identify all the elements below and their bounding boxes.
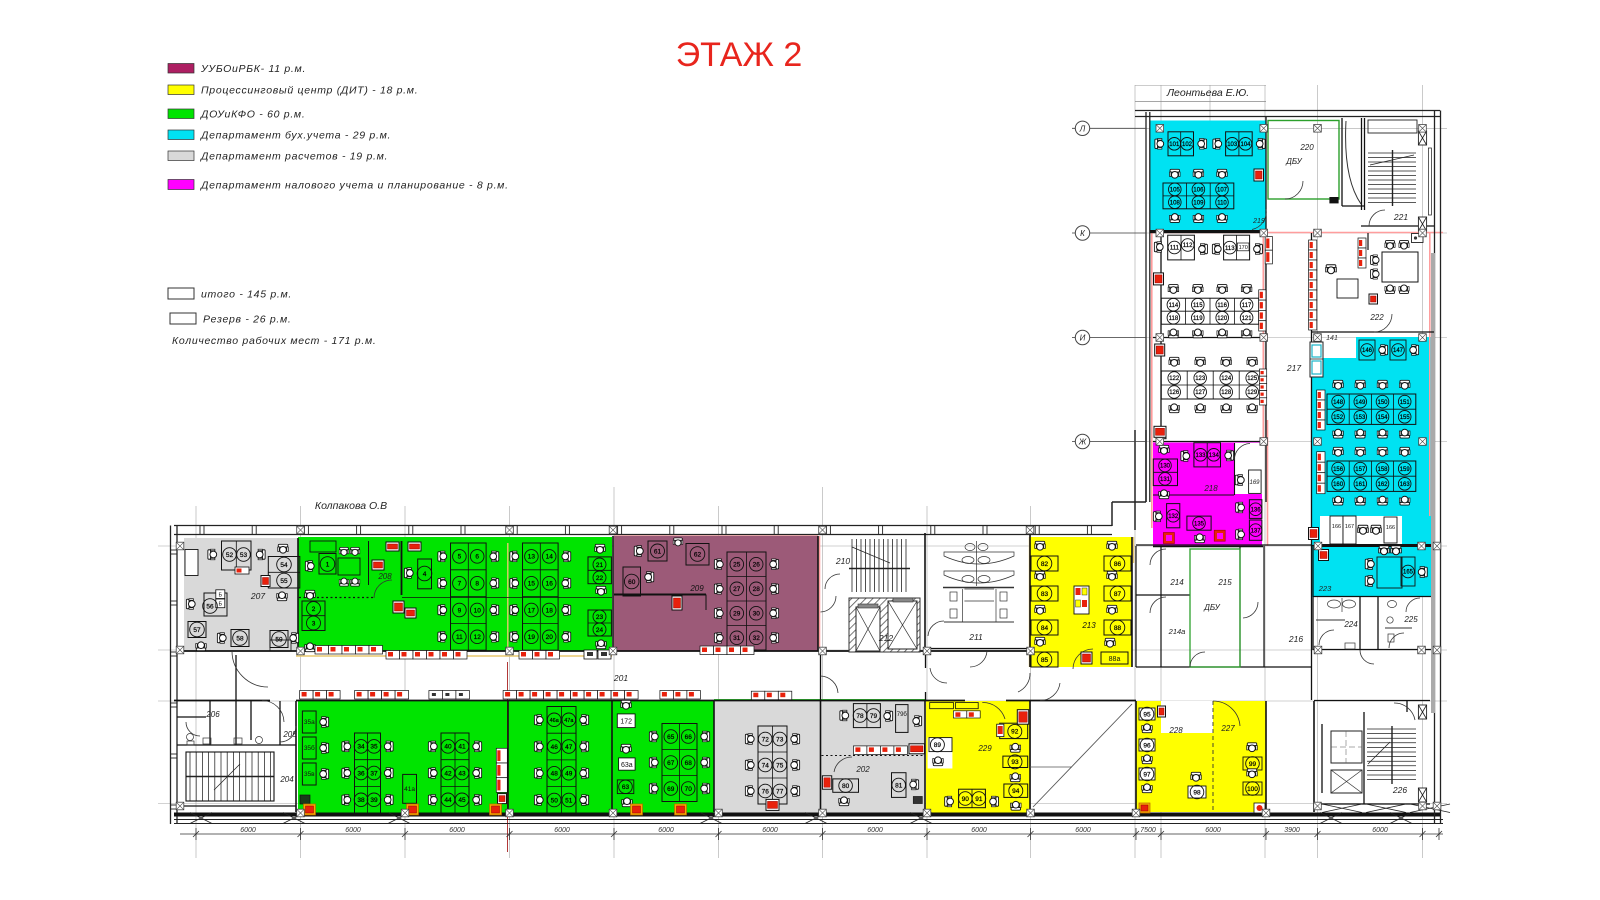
svg-text:9: 9 [458,607,462,614]
svg-text:122: 122 [1169,376,1180,382]
svg-text:88а: 88а [1109,656,1121,663]
svg-text:89: 89 [934,742,942,749]
svg-text:66: 66 [685,734,693,741]
svg-text:130: 130 [1160,464,1171,470]
svg-text:55: 55 [280,578,288,585]
svg-text:И: И [1080,334,1086,343]
svg-text:ДБУ: ДБУ [1203,603,1220,612]
svg-text:59: 59 [275,636,283,643]
svg-text:87: 87 [1114,591,1122,598]
svg-text:229: 229 [977,744,992,753]
svg-text:170: 170 [1239,245,1248,251]
svg-text:6000: 6000 [658,827,674,834]
svg-text:35: 35 [370,744,378,751]
svg-text:63а: 63а [621,762,633,769]
svg-text:79: 79 [870,713,878,720]
svg-text:172: 172 [620,719,632,726]
svg-text:222: 222 [1369,313,1384,322]
svg-text:110: 110 [1217,201,1227,207]
svg-text:46: 46 [551,744,559,751]
svg-text:106: 106 [1193,188,1204,194]
svg-text:101: 101 [1169,142,1180,148]
svg-text:127: 127 [1195,390,1206,396]
svg-text:128: 128 [1221,390,1232,396]
svg-text:120: 120 [1217,316,1228,322]
svg-text:206: 206 [205,710,220,719]
svg-text:80: 80 [842,783,850,790]
svg-text:99: 99 [1249,761,1257,768]
svg-text:107: 107 [1217,188,1228,194]
svg-text:42: 42 [444,770,452,777]
svg-text:итого - 145 р.м.: итого - 145 р.м. [201,289,292,301]
svg-text:50: 50 [551,797,559,804]
svg-text:103: 103 [1227,142,1238,148]
svg-text:115: 115 [1193,303,1203,309]
svg-text:154: 154 [1377,415,1388,421]
svg-text:ДБУ: ДБУ [1285,157,1302,166]
svg-text:114: 114 [1169,303,1179,309]
svg-text:28: 28 [753,586,761,593]
svg-text:13: 13 [528,554,536,561]
svg-text:15: 15 [528,581,536,588]
svg-text:7: 7 [458,581,462,588]
svg-text:224: 224 [1343,620,1358,629]
svg-text:212: 212 [878,633,893,643]
svg-text:32: 32 [753,635,761,642]
svg-text:109: 109 [1193,201,1204,207]
svg-text:43: 43 [458,770,466,777]
svg-text:202: 202 [855,765,870,774]
svg-text:6000: 6000 [1075,827,1091,834]
svg-text:227: 227 [1220,724,1235,733]
svg-text:129: 129 [1247,390,1258,396]
svg-text:35б: 35б [304,744,315,752]
svg-text:67: 67 [667,760,675,767]
svg-text:68: 68 [685,760,693,767]
svg-text:90: 90 [962,796,970,803]
svg-text:Количество рабочих мест - 171: Количество рабочих мест - 171 р.м. [172,335,376,347]
svg-text:49: 49 [565,771,573,778]
svg-text:70: 70 [685,786,693,793]
svg-text:117: 117 [1242,303,1252,309]
svg-text:214а: 214а [1168,627,1186,636]
svg-text:86: 86 [1114,561,1122,568]
svg-text:57: 57 [193,627,201,634]
svg-text:22: 22 [596,575,604,582]
svg-text:216: 216 [1288,634,1303,644]
svg-text:100: 100 [1247,786,1258,793]
svg-text:118: 118 [1169,316,1179,322]
svg-text:26: 26 [753,562,761,569]
svg-text:Департамент расчетов - 19 р.м: Департамент расчетов - 19 р.м. [200,151,388,163]
svg-text:40: 40 [444,744,452,751]
svg-text:77: 77 [776,788,784,795]
svg-text:215: 215 [1217,578,1232,587]
svg-text:146: 146 [1362,348,1373,354]
svg-text:98: 98 [1193,789,1201,796]
svg-text:25: 25 [733,562,741,569]
svg-text:65: 65 [667,734,675,741]
svg-text:95: 95 [1143,711,1151,718]
svg-text:47а: 47а [564,718,574,724]
svg-text:153: 153 [1355,415,1366,421]
svg-text:Департамент бух.учета - 29 р.м: Департамент бух.учета - 29 р.м. [200,130,391,142]
svg-text:76: 76 [762,788,770,795]
svg-text:19: 19 [528,634,536,641]
svg-text:27: 27 [733,586,741,593]
svg-text:14: 14 [546,554,554,561]
svg-text:41: 41 [458,744,466,751]
svg-text:97: 97 [1143,771,1151,778]
svg-text:78: 78 [856,713,864,720]
svg-text:213: 213 [1081,621,1096,630]
svg-text:108: 108 [1170,201,1181,207]
svg-text:35а: 35а [304,719,315,726]
svg-text:157: 157 [1355,467,1366,473]
svg-text:Леонтьева Е.Ю.: Леонтьева Е.Ю. [1166,87,1249,99]
svg-text:6000: 6000 [554,827,570,834]
svg-text:56: 56 [206,603,214,610]
svg-text:Департамент налового учета и п: Департамент налового учета и планировани… [200,180,509,192]
svg-text:35в: 35в [304,771,315,778]
svg-text:Ж: Ж [1078,438,1087,447]
svg-text:104: 104 [1240,142,1251,148]
svg-text:29: 29 [733,611,741,618]
svg-text:6000: 6000 [762,827,778,834]
svg-text:41а: 41а [404,786,415,793]
svg-text:31: 31 [733,635,741,642]
svg-text:ДОУиКФО - 60 р.м.: ДОУиКФО - 60 р.м. [200,109,305,121]
svg-text:91: 91 [975,796,983,803]
svg-text:113: 113 [1225,246,1235,252]
svg-text:105: 105 [1170,188,1181,194]
svg-text:166: 166 [1386,525,1395,531]
svg-text:63: 63 [622,784,630,791]
svg-text:133: 133 [1195,453,1206,459]
svg-text:6000: 6000 [971,827,987,834]
svg-text:Л: Л [1079,124,1086,133]
svg-text:3: 3 [312,620,316,627]
svg-text:159: 159 [1400,467,1411,473]
svg-text:135: 135 [1194,521,1205,527]
svg-text:119: 119 [1193,316,1203,322]
svg-text:156: 156 [1333,467,1344,473]
svg-text:24: 24 [596,627,604,634]
svg-text:17: 17 [528,607,536,614]
svg-text:37: 37 [370,770,378,777]
svg-text:44: 44 [444,797,452,804]
svg-text:116: 116 [1217,303,1227,309]
svg-text:102: 102 [1182,142,1193,148]
svg-text:34: 34 [357,744,365,751]
svg-text:150: 150 [1377,400,1388,406]
svg-text:47: 47 [565,744,573,751]
svg-text:60: 60 [628,579,636,586]
svg-text:12: 12 [474,634,482,641]
svg-text:123: 123 [1195,376,1206,382]
svg-text:132: 132 [1168,514,1179,520]
svg-text:226: 226 [1392,785,1407,795]
svg-text:167: 167 [1345,524,1354,530]
svg-text:6000: 6000 [449,827,465,834]
svg-text:204: 204 [279,775,294,784]
svg-text:62: 62 [694,551,702,558]
svg-text:82: 82 [1041,561,1049,568]
svg-text:6000: 6000 [345,827,361,834]
svg-text:217: 217 [1286,363,1301,373]
svg-text:2: 2 [312,606,316,613]
svg-text:10: 10 [474,607,482,614]
svg-text:121: 121 [1242,316,1253,322]
svg-text:225: 225 [1403,615,1418,624]
svg-text:52: 52 [226,552,234,559]
svg-text:Б: Б [218,602,222,608]
svg-text:88: 88 [1114,625,1122,632]
svg-text:6000: 6000 [1205,827,1221,834]
svg-text:54: 54 [280,562,288,569]
svg-text:6: 6 [475,554,479,561]
svg-text:4: 4 [423,571,427,578]
svg-text:165: 165 [1403,570,1414,576]
svg-text:161: 161 [1355,482,1366,488]
svg-text:УУБОиРБК- 11 р.м.: УУБОиРБК- 11 р.м. [200,63,306,75]
svg-text:218: 218 [1203,484,1218,493]
svg-text:85: 85 [1041,657,1049,664]
svg-text:136: 136 [1251,507,1262,513]
svg-text:6000: 6000 [240,827,256,834]
svg-text:51: 51 [565,797,573,804]
svg-text:61: 61 [654,548,662,555]
svg-text:137: 137 [1251,528,1262,534]
svg-text:36: 36 [357,770,365,777]
svg-text:214: 214 [1169,578,1184,587]
svg-text:205: 205 [282,730,297,739]
svg-text:6000: 6000 [1372,827,1388,834]
svg-text:131: 131 [1160,477,1171,483]
svg-text:169: 169 [1249,480,1260,486]
svg-text:11: 11 [456,634,463,641]
svg-text:38: 38 [357,797,365,804]
svg-text:8: 8 [475,581,479,588]
svg-text:141: 141 [1326,335,1338,342]
svg-text:94: 94 [1012,788,1020,795]
svg-text:208: 208 [377,572,392,581]
svg-text:93: 93 [1011,759,1019,766]
svg-text:45: 45 [458,797,466,804]
svg-text:79б: 79б [897,712,908,718]
svg-text:73: 73 [776,736,784,743]
svg-text:20: 20 [546,634,554,641]
svg-text:134: 134 [1209,453,1220,459]
svg-text:152: 152 [1333,415,1344,421]
svg-text:53: 53 [240,552,248,559]
svg-text:1: 1 [326,561,330,568]
svg-text:5: 5 [458,554,462,561]
svg-text:207: 207 [250,591,265,601]
svg-text:74: 74 [762,762,770,769]
svg-text:21: 21 [596,562,604,569]
svg-text:220: 220 [1299,143,1314,152]
svg-text:Колпакова О.В: Колпакова О.В [315,500,387,512]
svg-text:221: 221 [1393,212,1408,222]
svg-text:72: 72 [762,736,770,743]
svg-text:Резерв - 26 р.м.: Резерв - 26 р.м. [203,314,292,326]
svg-text:151: 151 [1400,400,1411,406]
svg-text:23: 23 [596,614,604,621]
svg-text:162: 162 [1377,482,1388,488]
svg-text:148: 148 [1333,400,1344,406]
svg-text:39: 39 [370,797,378,804]
svg-text:6000: 6000 [867,827,883,834]
svg-text:166: 166 [1332,524,1341,530]
svg-text:209: 209 [689,584,704,593]
svg-text:147: 147 [1393,348,1404,354]
svg-text:ЭТАЖ 2: ЭТАЖ 2 [676,36,803,74]
svg-text:163: 163 [1400,482,1411,488]
svg-text:125: 125 [1247,376,1258,382]
svg-text:58: 58 [236,635,244,642]
svg-text:96: 96 [1143,742,1151,749]
svg-text:18: 18 [546,607,554,614]
svg-text:75: 75 [776,762,784,769]
svg-text:155: 155 [1400,415,1411,421]
svg-text:69: 69 [667,786,675,793]
svg-text:210: 210 [835,556,850,566]
svg-text:16: 16 [546,581,554,588]
svg-text:228: 228 [1168,726,1183,735]
svg-text:126: 126 [1169,390,1180,396]
svg-text:211: 211 [968,632,983,642]
svg-text:Процессинговый центр (ДИТ) -: Процессинговый центр (ДИТ) - 18 р.м. [201,85,418,97]
svg-text:3900: 3900 [1284,827,1300,834]
svg-text:81: 81 [895,782,903,789]
svg-text:84: 84 [1041,625,1049,632]
svg-text:124: 124 [1221,376,1232,382]
svg-text:Б: Б [218,592,222,598]
svg-text:201: 201 [613,673,628,683]
svg-text:48: 48 [551,771,559,778]
svg-text:83: 83 [1041,591,1049,598]
svg-text:158: 158 [1377,467,1388,473]
svg-text:46а: 46а [550,718,560,724]
svg-text:223: 223 [1318,584,1332,593]
svg-text:112: 112 [1183,243,1193,249]
svg-text:149: 149 [1355,400,1366,406]
svg-text:111: 111 [1170,246,1180,252]
svg-text:160: 160 [1333,482,1344,488]
svg-text:219: 219 [1252,218,1265,225]
svg-text:7500: 7500 [1140,827,1156,834]
svg-text:92: 92 [1011,729,1019,736]
svg-text:30: 30 [753,611,761,618]
